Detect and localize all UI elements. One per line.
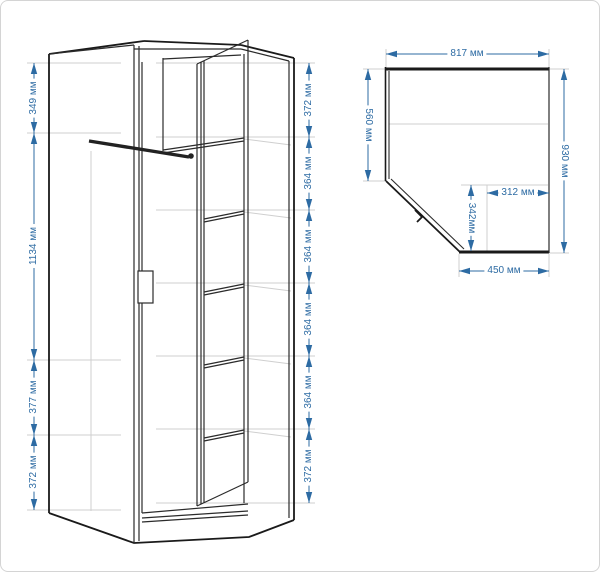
front-view-drawing — [27, 40, 315, 543]
top-view-drawing — [363, 49, 569, 277]
dim-label-front-right-3: 364 мм — [303, 299, 315, 338]
dim-label-front-right-5: 372 мм — [303, 446, 315, 485]
dim-label-front-left-0: 349 мм — [28, 78, 40, 117]
dim-label-front-left-1: 1134 мм — [28, 224, 40, 268]
left-door-handle — [138, 271, 153, 303]
technical-drawing-canvas: 349 мм 1134 мм 377 мм 372 мм 372 мм 364 … — [0, 0, 600, 572]
cabinet-inner-lines — [49, 40, 289, 543]
dim-label-plan-inner-depth: 342мм — [465, 200, 477, 236]
dim-label-front-left-2: 377 мм — [28, 377, 40, 416]
dim-label-plan-top-width: 817 мм — [447, 48, 486, 60]
dim-label-front-right-1: 364 мм — [303, 153, 315, 192]
dim-label-plan-left-depth: 560 мм — [362, 105, 374, 144]
dim-label-front-right-2: 364 мм — [303, 226, 315, 265]
drawing-svg — [1, 1, 599, 571]
top-view-extension-lines — [363, 49, 569, 277]
dim-label-plan-bottom-width: 450 мм — [484, 265, 523, 277]
front-view-extension-lines — [27, 63, 315, 511]
dim-label-front-right-0: 372 мм — [303, 80, 315, 119]
dim-label-front-right-4: 364 мм — [303, 372, 315, 411]
cabinet-outline — [49, 41, 294, 543]
dim-label-plan-inner-width: 312 мм — [498, 187, 537, 199]
plan-dimension-lines — [368, 54, 564, 271]
dim-label-front-left-3: 372 мм — [28, 452, 40, 491]
dim-label-plan-right-depth: 930 мм — [558, 141, 570, 180]
